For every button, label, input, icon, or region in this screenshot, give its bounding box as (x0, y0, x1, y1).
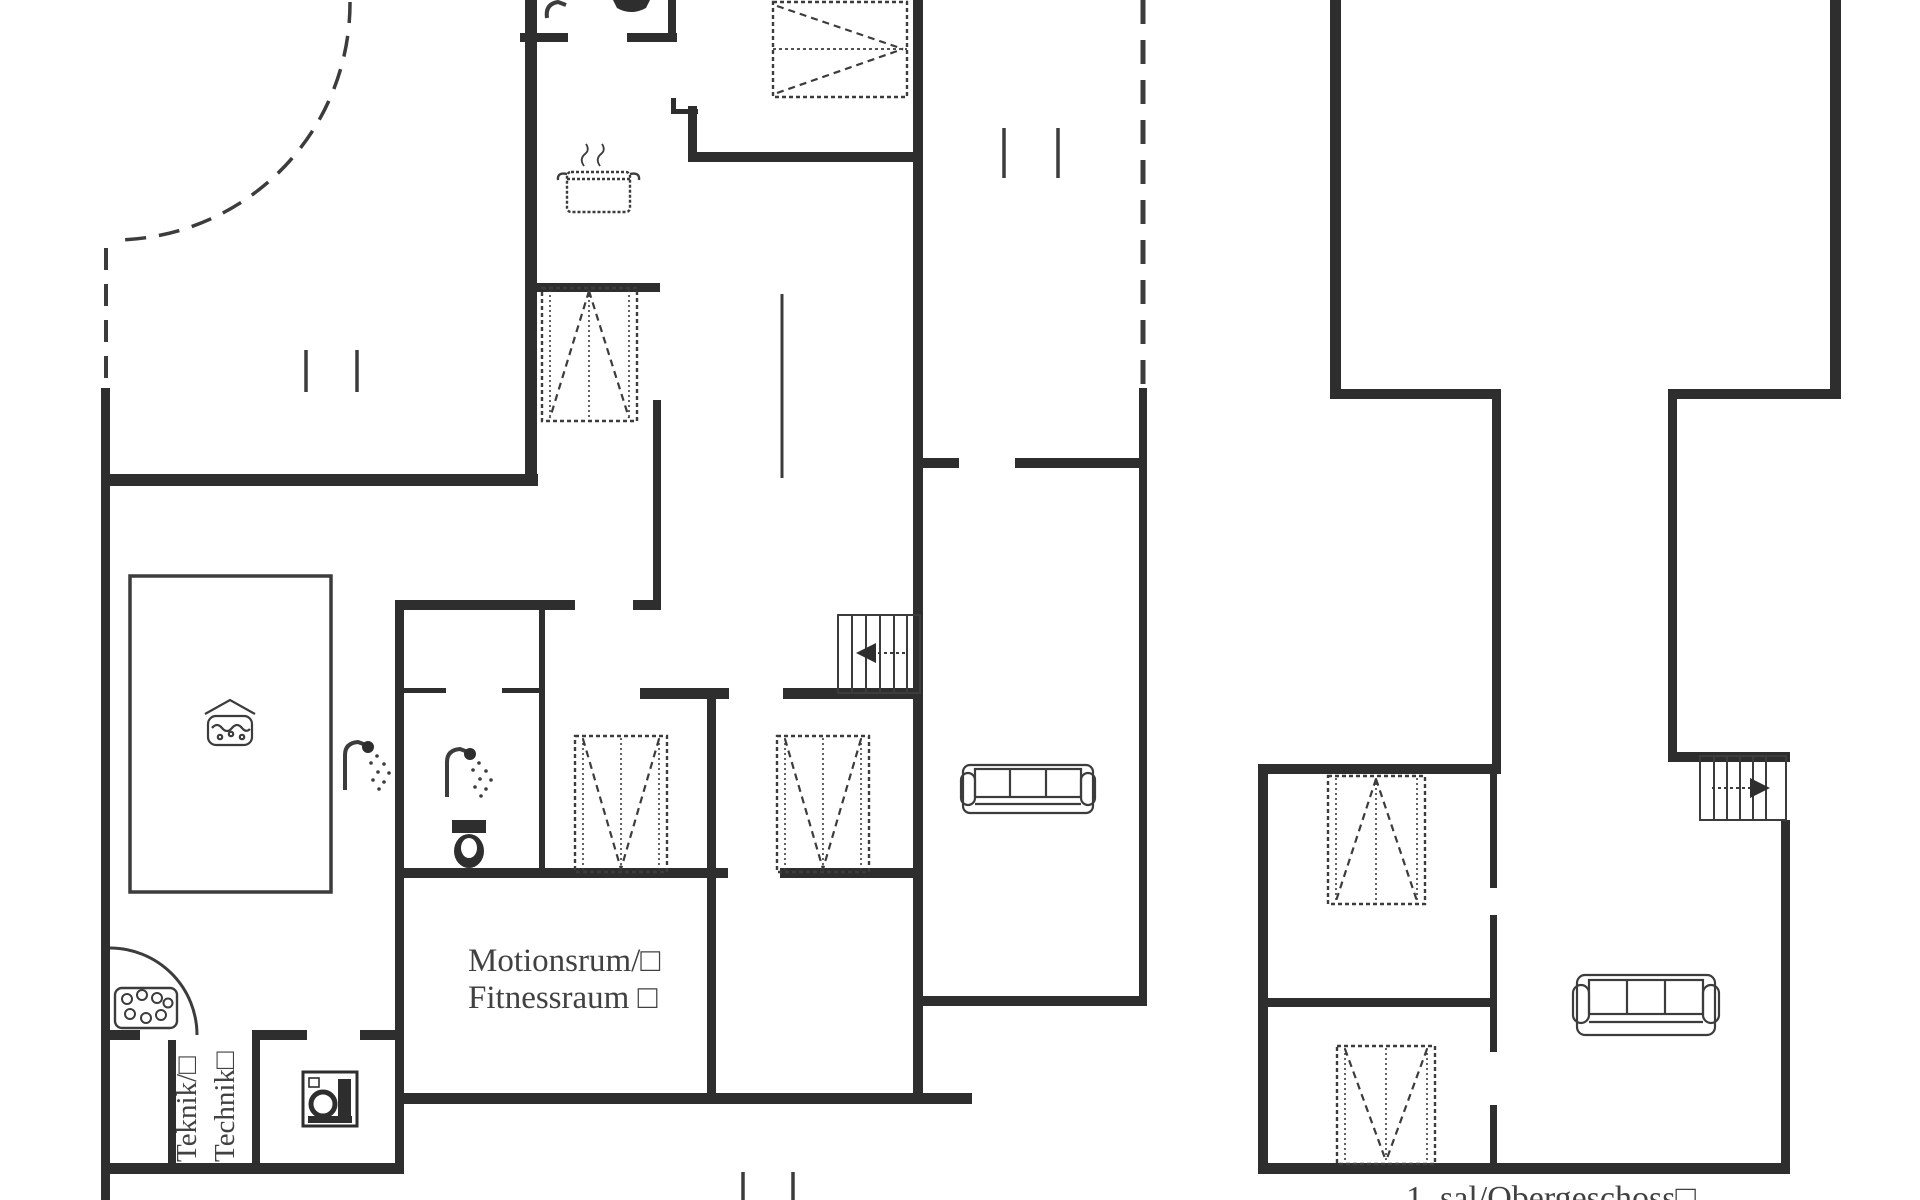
door-swing-arc (110, 948, 197, 1035)
floor-plan-page: Motionsrum/□ Fitnessraum □ Teknik/□ Tech… (0, 0, 1920, 1200)
terrace-boundary-arc (113, 2, 350, 240)
door-opening-marks (306, 128, 1058, 1200)
whirlpool-icon (205, 700, 255, 745)
wardrobe-icon (1328, 776, 1425, 904)
technik-room-label-line1: Teknik/□ (171, 1056, 203, 1162)
washing-machine-icon (303, 1072, 357, 1126)
spray-dots (369, 754, 391, 791)
sofa-icon (961, 765, 1095, 813)
exterior-walls (101, 0, 1841, 1200)
technik-room-label-line2: Technik□ (209, 1051, 241, 1162)
spray-dots (471, 761, 493, 798)
double-wardrobe-icon (773, 2, 907, 97)
pool-outline (130, 576, 331, 892)
wardrobe-icon (1337, 1046, 1435, 1164)
steam-icon (598, 144, 604, 166)
wardrobe-icon (777, 736, 869, 872)
sauna-stones-icon (115, 988, 177, 1028)
fitness-room-label-line1: Motionsrum/□ (468, 943, 660, 979)
toilet-icon (613, 0, 650, 12)
floor-plan-drawing: Motionsrum/□ Fitnessraum □ Teknik/□ Tech… (0, 0, 1920, 1200)
wardrobe-icons (542, 288, 1435, 1164)
floor-caption: 1. sal/Obergeschoss□ (1406, 1180, 1696, 1200)
toilet-icon (452, 820, 486, 868)
cooking-pot-icon (558, 144, 639, 212)
sofa-icon (1573, 975, 1719, 1035)
fitness-room-label-line2: Fitnessraum □ (468, 980, 658, 1016)
steam-icon (582, 144, 588, 166)
shower-icon (547, 2, 566, 18)
shower-icon (447, 748, 493, 798)
stairs-right (1700, 756, 1786, 820)
wardrobe-icon (542, 288, 637, 421)
shower-icon (345, 741, 391, 791)
stairs-middle (838, 615, 920, 693)
wardrobe-icon (575, 736, 667, 872)
